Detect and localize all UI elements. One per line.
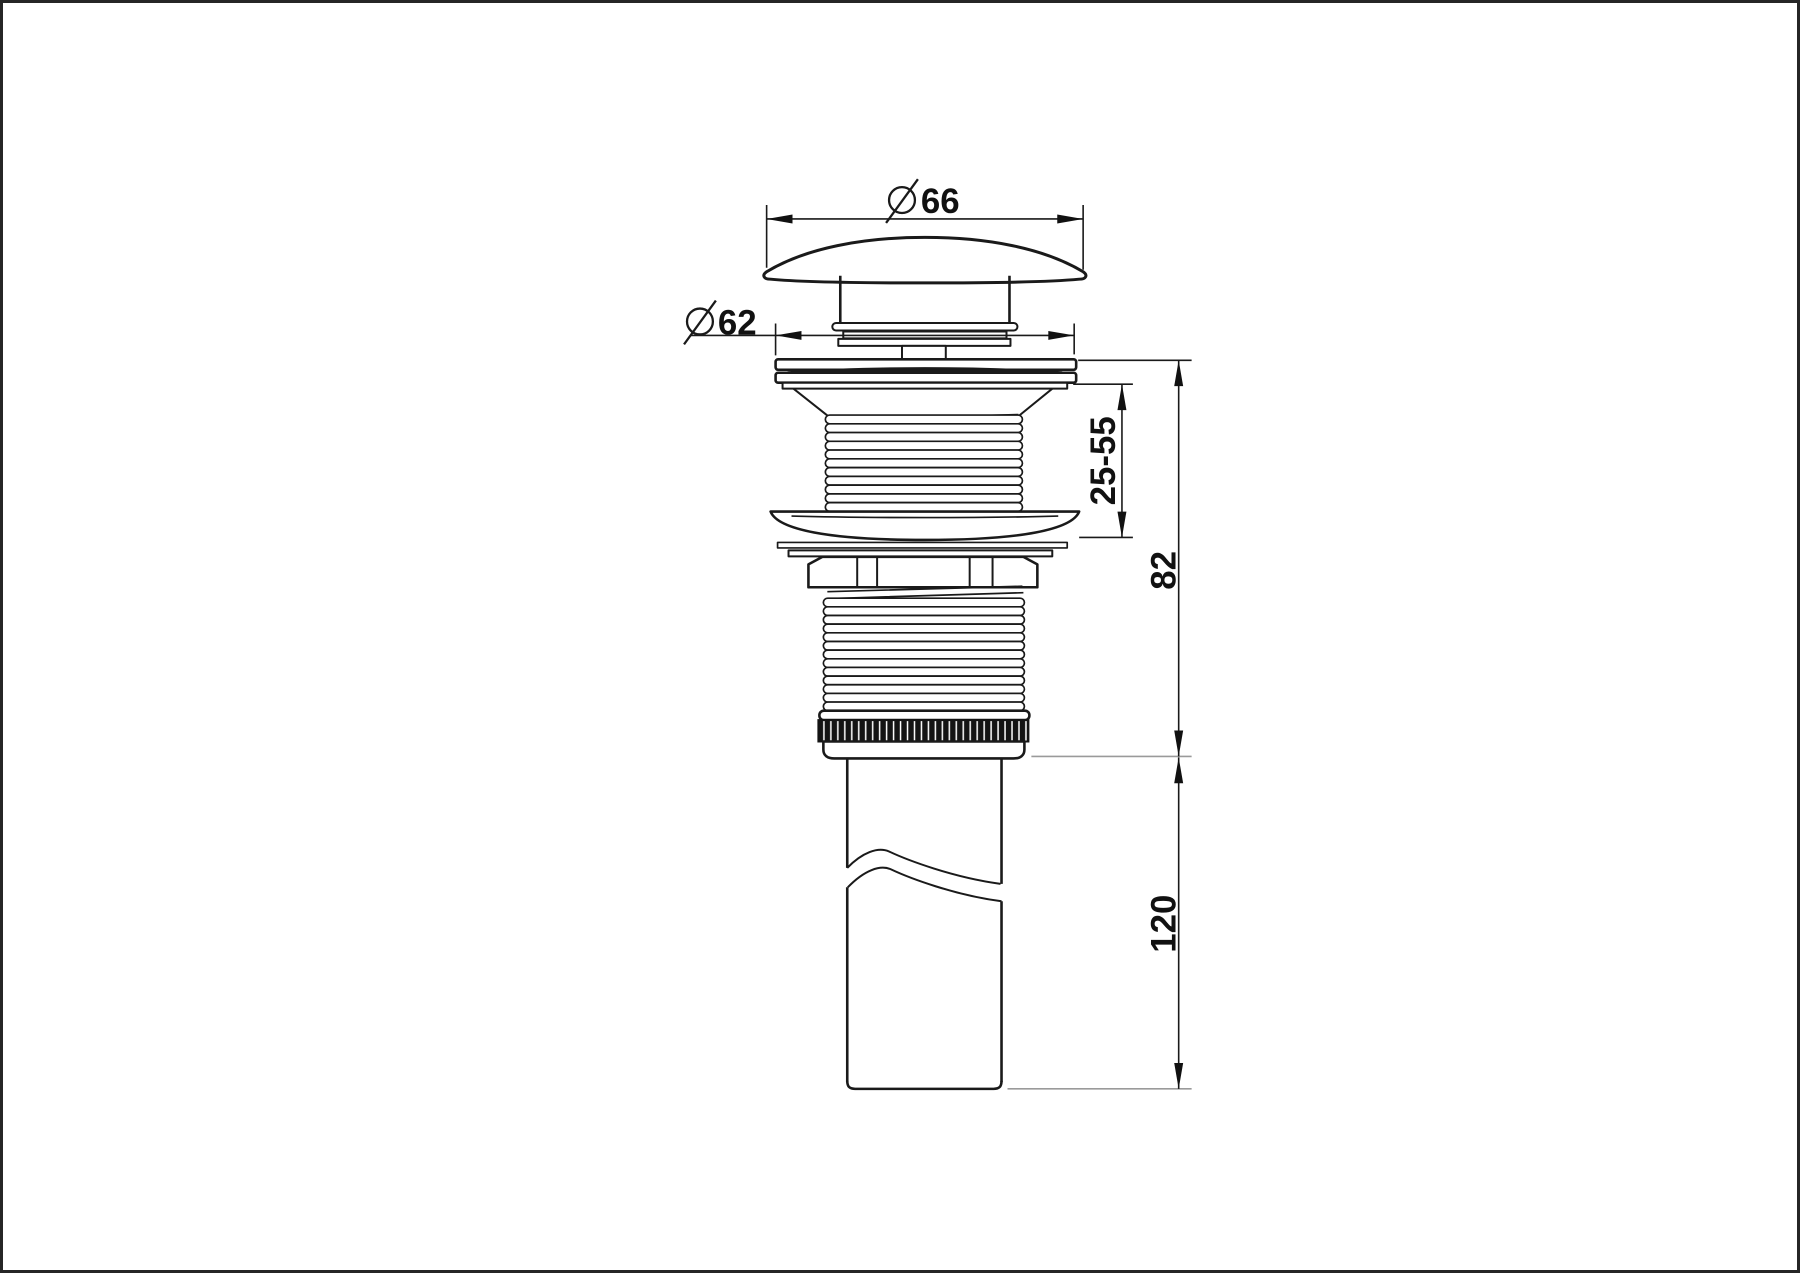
cap-outline	[764, 237, 1086, 283]
dim-tailpipe-length: 120	[1007, 757, 1191, 1088]
top-flange	[776, 359, 1077, 417]
dim-value-cap: 66	[921, 182, 960, 221]
dim-value-clamp: 25-55	[1084, 416, 1123, 505]
knurled-nut	[818, 711, 1029, 759]
technical-drawing: 66 62 25-55 82 120	[3, 3, 1797, 1270]
knurl-band	[818, 720, 1028, 741]
nut-base	[823, 742, 1024, 759]
dim-value-flange: 62	[718, 303, 757, 342]
pipe-break-icon	[847, 850, 1001, 901]
tailpipe-bottom	[847, 1081, 1001, 1089]
lock-collar	[808, 557, 1037, 599]
dim-arrowhead	[1174, 360, 1183, 386]
diameter-icon	[684, 301, 716, 345]
flange-taper	[794, 389, 1053, 417]
diameter-icon	[886, 179, 918, 223]
dim-arrowhead	[1117, 512, 1126, 538]
dim-arrowhead	[1057, 214, 1083, 223]
cap-neck	[902, 346, 946, 360]
dim-arrowhead	[1174, 1063, 1183, 1089]
dim-arrowhead	[1048, 331, 1074, 340]
upper-thread	[825, 415, 1022, 512]
dim-arrowhead	[767, 214, 793, 223]
cap-retainer-rings	[832, 323, 1017, 360]
dim-clamp-range: 25-55	[1073, 384, 1133, 537]
dim-arrowhead	[1117, 384, 1126, 410]
lower-thread	[823, 598, 1024, 711]
dim-arrowhead	[1174, 757, 1183, 783]
push-cap	[764, 237, 1086, 323]
dim-value-body: 82	[1145, 551, 1184, 590]
dim-arrowhead	[1174, 731, 1183, 757]
dim-arrowhead	[776, 331, 802, 340]
dim-value-tailpipe: 120	[1145, 895, 1184, 953]
sealing-washer	[771, 512, 1080, 557]
tailpipe	[847, 758, 1001, 1088]
drawing-sheet: 66 62 25-55 82 120	[0, 0, 1800, 1273]
washer-plate	[778, 542, 1068, 547]
